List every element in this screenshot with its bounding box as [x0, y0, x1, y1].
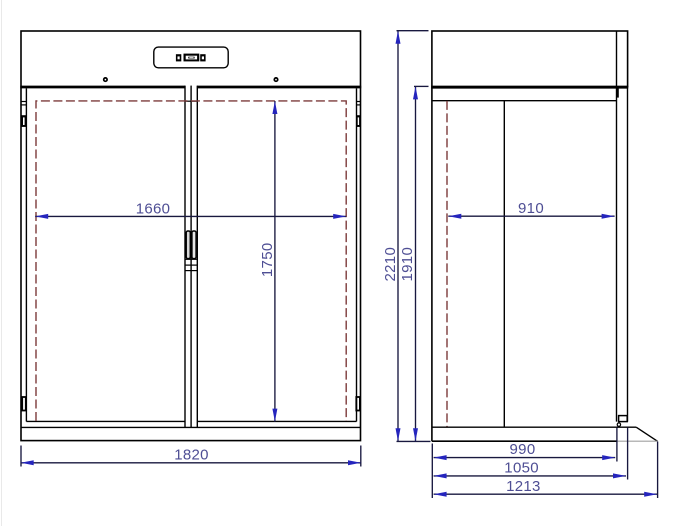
svg-text:1050: 1050: [504, 459, 539, 476]
svg-text:2210: 2210: [382, 247, 399, 282]
svg-text:1750: 1750: [259, 243, 276, 278]
svg-text:1820: 1820: [174, 446, 209, 463]
svg-text:1213: 1213: [506, 478, 541, 495]
svg-text:910: 910: [518, 200, 544, 217]
svg-text:1910: 1910: [399, 247, 416, 282]
svg-text:1660: 1660: [136, 200, 171, 217]
svg-text:990: 990: [510, 441, 536, 458]
